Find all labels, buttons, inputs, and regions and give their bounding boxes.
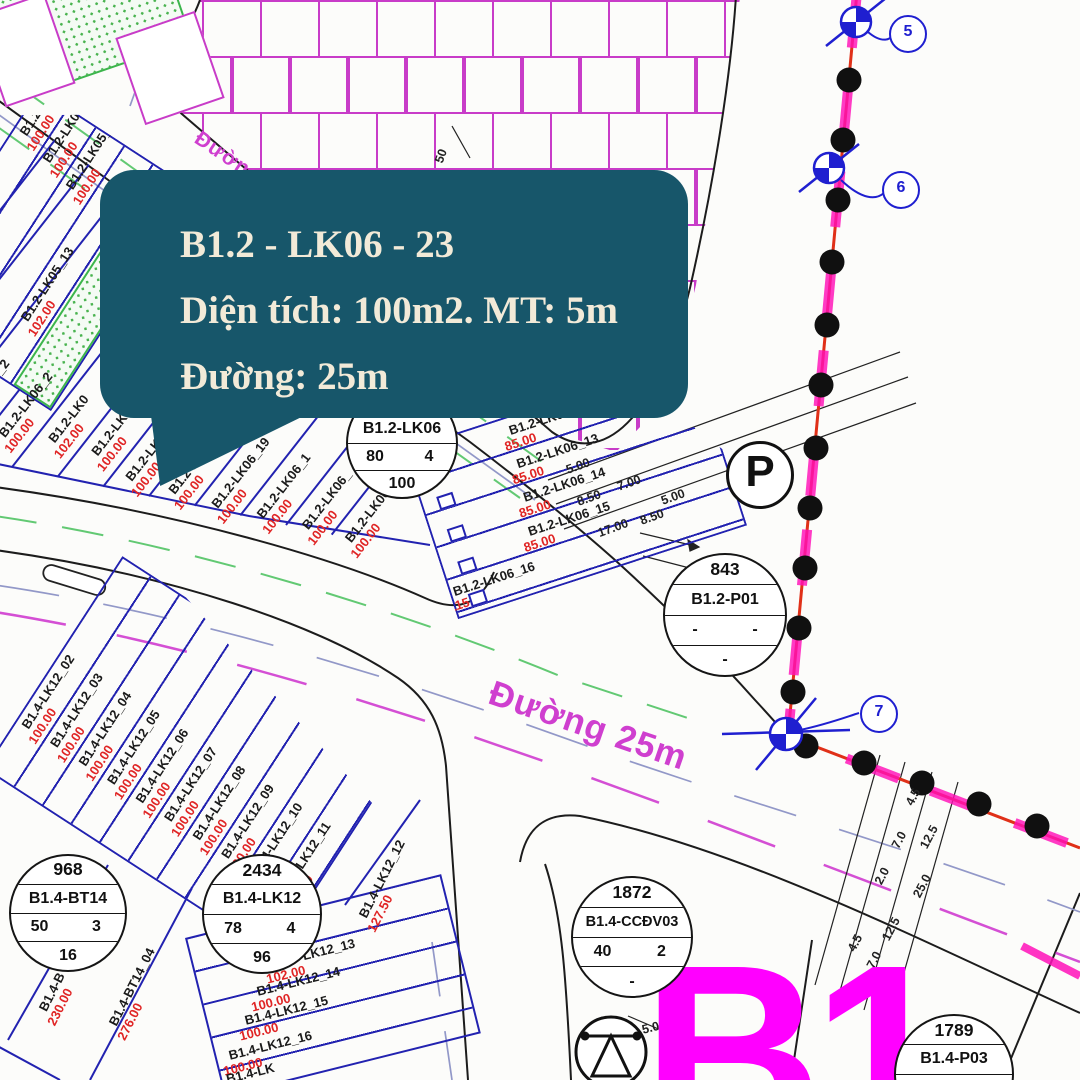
building-footprint	[457, 556, 477, 575]
parking-icon: P	[726, 441, 794, 509]
block-circle-2434: 2434 B1.4-LK12 784 96	[202, 854, 322, 974]
block-circle-1872: 1872 B1.4-CCĐV03 402 -	[571, 876, 693, 998]
callout-area: Diện tích: 100m2. MT: 5m	[180, 278, 688, 344]
cadastral-map[interactable]: B1.2-LK05_10100.00 B1.2-LK05_11100.00 B1…	[0, 0, 1080, 1080]
block-name: B1.4-BT14	[11, 885, 125, 914]
survey-marker-5-icon	[826, 0, 893, 46]
block-name: B1.4-LK12	[204, 885, 320, 914]
transformer-icon	[572, 1012, 650, 1080]
block-numbers: --	[665, 616, 785, 646]
callout-road: Đường: 25m	[180, 344, 688, 410]
block-num-a: 40	[573, 943, 632, 961]
block-name: B1.2-P01	[665, 585, 785, 615]
callout-title: B1.2 - LK06 - 23	[180, 212, 688, 278]
block-numbers	[896, 1075, 1012, 1080]
block-circle-968: 968 B1.4-BT14 503 16	[9, 854, 127, 972]
marker-6-badge: 6	[882, 171, 920, 209]
block-numbers: 503	[11, 914, 125, 943]
block-numbers: 784	[204, 915, 320, 944]
block-numbers: 402	[573, 938, 691, 968]
block-numbers: 804	[348, 444, 456, 471]
block-num-a: -	[665, 621, 725, 639]
block-num-a: 50	[11, 918, 68, 936]
block-num-b: 3	[68, 918, 125, 936]
marker-5-badge: 5	[889, 15, 927, 53]
block-num-b: 4	[402, 448, 456, 466]
block-num-b: 4	[262, 920, 320, 938]
block-name: B1.2-LK06	[348, 416, 456, 443]
building-footprint	[436, 492, 456, 511]
block-num-a: 80	[348, 448, 402, 466]
block-num-a: 78	[204, 920, 262, 938]
block-circle-843: 843 B1.2-P01 -- -	[663, 553, 787, 677]
block-num-b: -	[725, 621, 785, 639]
block-num-b: 2	[632, 943, 691, 961]
marker-7-badge: 7	[860, 695, 898, 733]
block-name: B1.4-P03	[896, 1045, 1012, 1074]
plot-info-callout: B1.2 - LK06 - 23 Diện tích: 100m2. MT: 5…	[100, 170, 688, 418]
building-footprint	[447, 524, 467, 543]
block-name: B1.4-CCĐV03	[573, 908, 691, 938]
